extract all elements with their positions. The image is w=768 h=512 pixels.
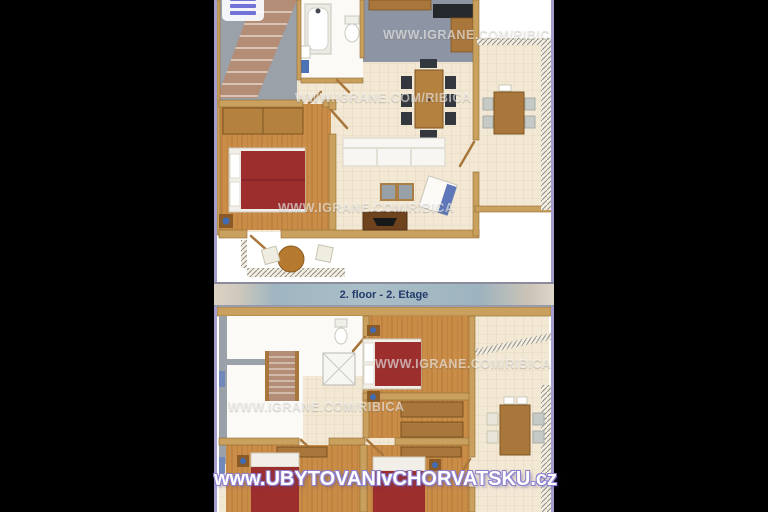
floor-plan-1-drawing bbox=[217, 0, 551, 282]
plan-watermark: WWW.IGRANE.COM/RIBICA bbox=[228, 400, 404, 414]
floor-banner-label: 2. floor - 2. Etage bbox=[340, 289, 429, 301]
floorplan-gallery: WWW.IGRANE.COM/RIBICA WWW.IGRANE.COM/RIB… bbox=[214, 0, 554, 512]
menu-button[interactable] bbox=[222, 0, 264, 21]
plan-watermark: WWW.IGRANE.COM/RIBICA bbox=[278, 201, 454, 215]
site-watermark: www.UBYTOVANIvCHORVATSKU.cz bbox=[214, 466, 554, 492]
plan-watermark: WWW.IGRANE.COM/RIBICA bbox=[383, 28, 554, 42]
plan-watermark: WWW.IGRANE.COM/RIBICA bbox=[295, 91, 471, 105]
floor-banner: 2. floor - 2. Etage bbox=[214, 282, 554, 307]
hamburger-menu-icon bbox=[230, 4, 256, 8]
plan-watermark: WWW.IGRANE.COM/RIBICA bbox=[375, 357, 551, 371]
hamburger-menu-icon bbox=[230, 11, 256, 15]
hamburger-menu-icon bbox=[230, 0, 256, 1]
floor-plan-1-image: WWW.IGRANE.COM/RIBICA WWW.IGRANE.COM/RIB… bbox=[214, 0, 554, 282]
